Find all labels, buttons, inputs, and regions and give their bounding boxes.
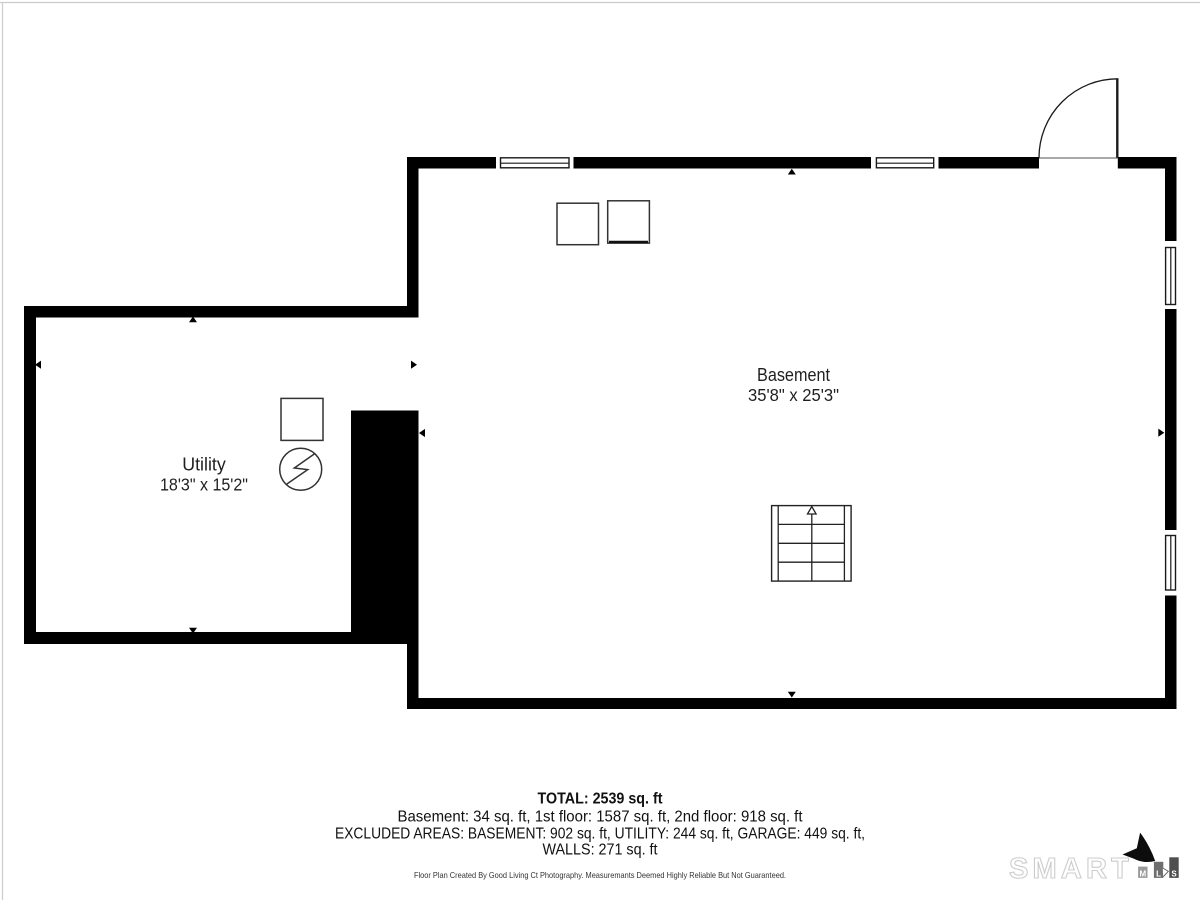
svg-text:Utility: Utility (182, 455, 226, 475)
svg-text:Basement: 34 sq. ft, 1st floor: Basement: 34 sq. ft, 1st floor: 1587 sq.… (398, 809, 804, 826)
svg-text:M: M (1139, 869, 1146, 878)
svg-text:TOTAL: 2539 sq. ft: TOTAL: 2539 sq. ft (538, 791, 664, 808)
svg-text:EXCLUDED AREAS: BASEMENT: 902: EXCLUDED AREAS: BASEMENT: 902 sq. ft, UT… (335, 826, 865, 843)
svg-text:Basement: Basement (757, 365, 830, 385)
svg-text:WALLS: 271 sq. ft: WALLS: 271 sq. ft (543, 842, 658, 859)
svg-text:Floor Plan Created By Good Liv: Floor Plan Created By Good Living Ct Pho… (414, 871, 786, 880)
svg-text:SMART: SMART (1009, 853, 1133, 885)
svg-text:L: L (1156, 869, 1161, 878)
svg-text:18'3" x 15'2": 18'3" x 15'2" (160, 475, 248, 495)
svg-text:S: S (1171, 869, 1177, 878)
svg-text:35'8" x 25'3": 35'8" x 25'3" (748, 385, 839, 405)
